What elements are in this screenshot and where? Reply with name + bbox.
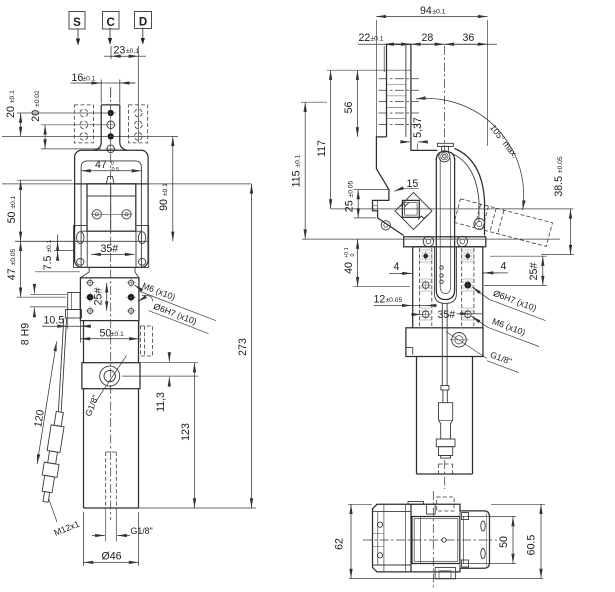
svg-text:40: 40	[343, 262, 355, 274]
svg-text:22: 22	[359, 32, 371, 44]
svg-text:±0.1: ±0.1	[111, 331, 124, 338]
svg-text:90 ±0.1: 90 ±0.1	[158, 183, 170, 211]
svg-text:Ø46: Ø46	[102, 551, 122, 563]
svg-text:4: 4	[501, 261, 507, 273]
svg-text:D: D	[139, 17, 147, 29]
svg-text:±0.1: ±0.1	[126, 48, 139, 55]
svg-text:±0.1: ±0.1	[83, 75, 96, 82]
svg-text:20 ±0.02: 20 ±0.02	[30, 90, 42, 122]
svg-text:11,3: 11,3	[155, 392, 167, 412]
svg-text:60.5: 60.5	[526, 535, 538, 556]
svg-text:25#: 25#	[528, 263, 540, 281]
svg-text:G1/8": G1/8"	[83, 393, 101, 417]
svg-text:47: 47	[95, 159, 107, 171]
svg-text:94: 94	[420, 5, 432, 17]
svg-text:0: 0	[350, 254, 356, 257]
svg-text:50: 50	[100, 328, 112, 340]
svg-text:123: 123	[180, 423, 192, 441]
svg-text:50 ±0.1: 50 ±0.1	[6, 195, 18, 223]
svg-text:±0.05: ±0.05	[386, 297, 403, 304]
svg-text:36: 36	[463, 32, 475, 44]
svg-text:47 ±0.05: 47 ±0.05	[6, 249, 18, 281]
svg-text:Ø6H7 (x10): Ø6H7 (x10)	[492, 288, 538, 313]
svg-text:8 H9: 8 H9	[20, 323, 32, 345]
svg-text:50: 50	[498, 536, 510, 548]
svg-text:-0.5: -0.5	[110, 167, 119, 173]
svg-text:38.5 ±0.05: 38.5 ±0.05	[553, 156, 565, 197]
svg-text:23: 23	[114, 45, 126, 57]
svg-text:12: 12	[374, 294, 386, 306]
svg-text:62: 62	[334, 538, 346, 550]
svg-text:105° max.: 105° max.	[488, 123, 520, 160]
svg-text:25 ±0.05: 25 ±0.05	[344, 181, 356, 213]
svg-text:S: S	[73, 17, 81, 29]
svg-text:M6 (x10): M6 (x10)	[491, 316, 527, 338]
svg-text:25#: 25#	[93, 288, 105, 306]
svg-text:115 ±0.1: 115 ±0.1	[291, 154, 303, 187]
svg-text:117: 117	[316, 140, 328, 157]
svg-text:20 ±0.1: 20 ±0.1	[5, 90, 17, 118]
svg-text:5,37: 5,37	[412, 117, 424, 138]
svg-text:10.5: 10.5	[44, 314, 65, 326]
svg-text:56: 56	[343, 102, 355, 114]
svg-text:120: 120	[32, 409, 47, 428]
svg-text:35#: 35#	[101, 243, 119, 255]
svg-text:G1/8": G1/8"	[489, 350, 513, 367]
svg-text:±0.1: ±0.1	[371, 36, 384, 43]
svg-text:±0.1: ±0.1	[433, 8, 446, 15]
svg-text:G1/8": G1/8"	[131, 526, 153, 536]
svg-text:28: 28	[422, 32, 434, 44]
svg-text:35#: 35#	[438, 309, 456, 321]
svg-text:C: C	[107, 17, 115, 29]
svg-text:273: 273	[237, 338, 249, 356]
svg-text:4: 4	[394, 261, 400, 273]
svg-text:7.5 ±0.1: 7.5 ±0.1	[42, 239, 54, 270]
